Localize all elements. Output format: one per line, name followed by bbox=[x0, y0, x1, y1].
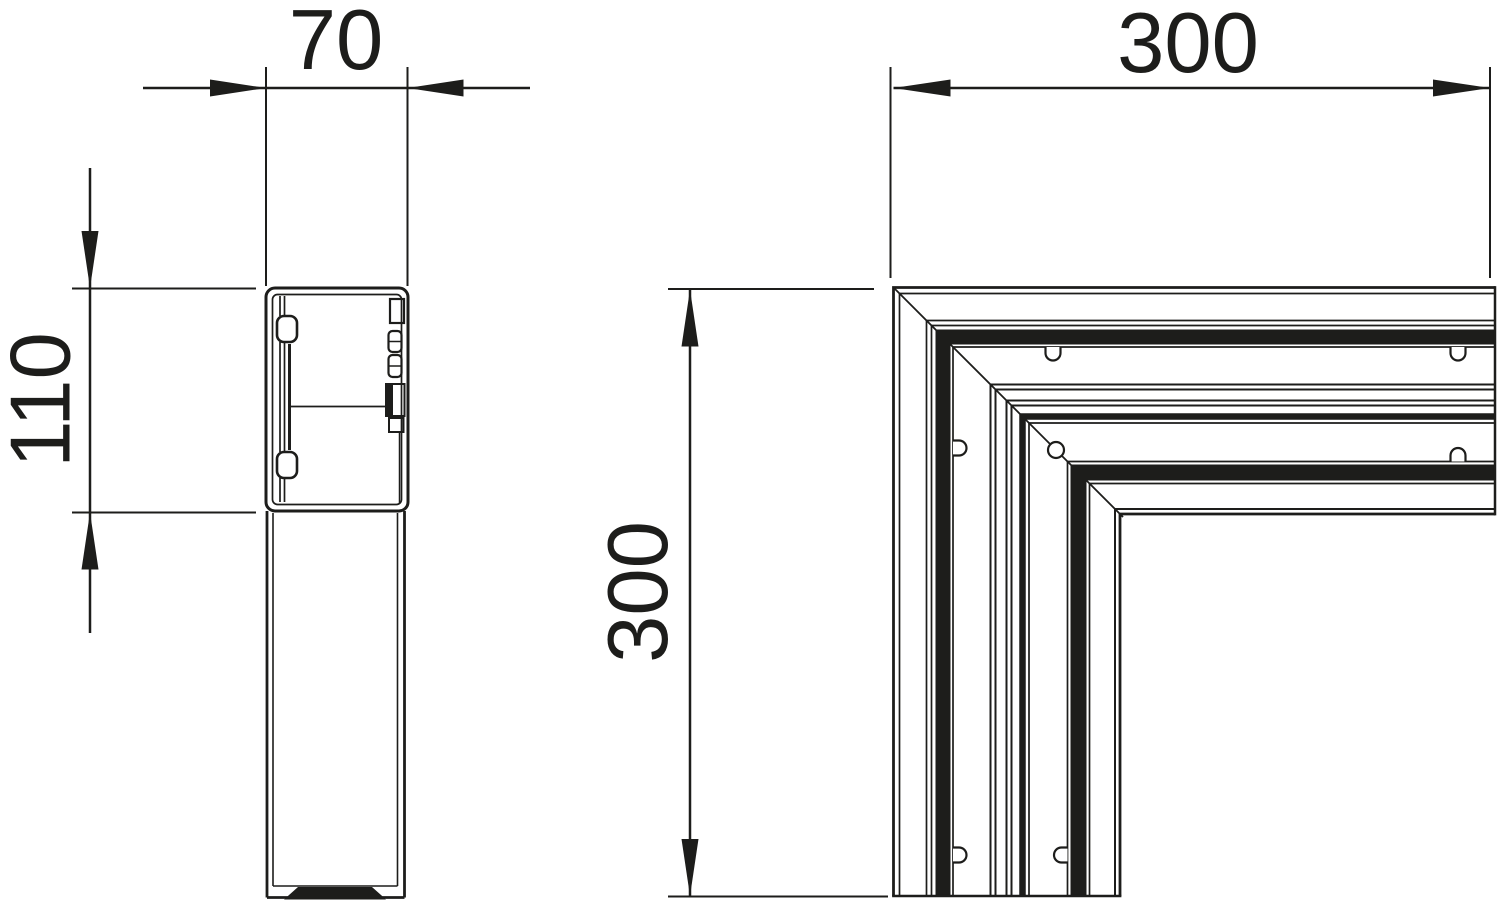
mounting-hole bbox=[1451, 347, 1466, 361]
mounting-hole bbox=[1451, 448, 1466, 461]
band-inner-edge bbox=[1120, 514, 1495, 896]
latch-frame-bar bbox=[386, 384, 393, 416]
arrowhead-down-icon bbox=[82, 231, 99, 288]
arrowhead-left-icon bbox=[894, 80, 951, 97]
miter-diagonal bbox=[894, 288, 1124, 518]
drawing-svg: 70 110 bbox=[0, 0, 1500, 902]
miter-hole bbox=[1048, 442, 1064, 458]
dimension-label-300-width: 300 bbox=[1117, 0, 1259, 91]
profile-side-view bbox=[266, 288, 408, 511]
arrowhead-left-icon bbox=[408, 80, 464, 97]
dimension-profile-width: 70 bbox=[143, 0, 530, 286]
dimension-corner-height: 300 bbox=[591, 289, 888, 897]
mounting-hole bbox=[953, 848, 967, 863]
arrowhead-down-icon bbox=[682, 839, 699, 896]
band-thick-wall bbox=[1079, 473, 1496, 897]
arrowhead-right-icon bbox=[210, 80, 266, 97]
mounting-hole bbox=[1054, 848, 1068, 863]
rail-bottom-clip bbox=[277, 452, 297, 478]
rail-top-clip bbox=[277, 316, 297, 342]
dimension-label-110: 110 bbox=[0, 332, 89, 468]
band-inner-line bbox=[1115, 509, 1495, 896]
end-gasket bbox=[284, 887, 386, 900]
band-line bbox=[1068, 462, 1496, 897]
profile-lower-body bbox=[267, 511, 405, 900]
corner-plan-view bbox=[892, 286, 1495, 896]
arrowhead-up-icon bbox=[82, 513, 99, 570]
dimension-corner-width: 300 bbox=[891, 0, 1491, 278]
dimension-label-300-height: 300 bbox=[591, 521, 686, 663]
dimension-label-70: 70 bbox=[289, 0, 384, 88]
technical-drawing-canvas: 70 110 bbox=[0, 0, 1500, 902]
dimension-profile-height: 110 bbox=[0, 168, 256, 633]
band-line bbox=[1090, 484, 1496, 897]
mounting-hole bbox=[1046, 347, 1061, 361]
mounting-hole bbox=[953, 441, 967, 456]
arrowhead-up-icon bbox=[682, 290, 699, 347]
arrowhead-right-icon bbox=[1433, 80, 1490, 97]
